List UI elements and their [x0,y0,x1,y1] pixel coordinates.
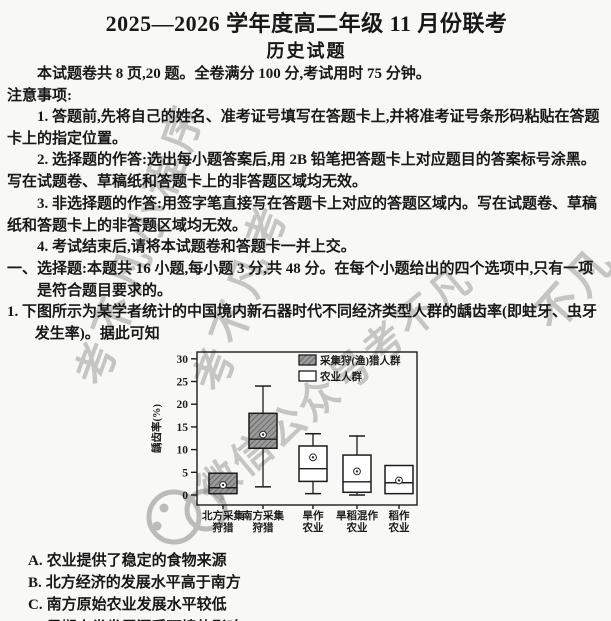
answer-options: A.农业提供了稳定的食物来源 B.北方经济的发展水平高于南方 C.南方原始农业发… [7,550,606,621]
option-c: C.南方原始农业发展水平较低 [28,594,606,616]
question-number: 1. [7,304,22,320]
svg-text:5: 5 [182,467,188,479]
svg-text:北方采集: 北方采集 [202,509,244,522]
option-c-text: 南方原始农业发展水平较低 [47,597,227,613]
option-a-label: A. [28,553,43,569]
notice-item: 4. 考试结束后,请将本试题卷和答题卡一并上交。 [7,237,606,259]
svg-text:狩猎: 狩猎 [212,521,234,534]
exam-paper-page: 考不凡小程序考不凡考微信公众号考不凡不凡 2025—2026 学年度高二年级 1… [0,0,611,621]
question-1: 1. 下图所示为某学者统计的中国境内新石器时代不同经济类型人群的龋齿率(即蛀牙、… [7,302,606,345]
svg-text:旱稻混作: 旱稻混作 [336,509,378,522]
option-b: B.北方经济的发展水平高于南方 [28,572,606,594]
svg-text:农业: 农业 [302,521,324,534]
svg-text:旱作: 旱作 [303,509,324,522]
document-content: 2025—2026 学年度高二年级 11 月份联考 历史试题 本试题卷共 8 页… [0,10,611,621]
page-subtitle: 历史试题 [7,39,606,63]
svg-text:0: 0 [182,490,188,502]
option-d: D.早期人类发展深受环境的影响 [28,617,606,621]
svg-text:20: 20 [177,399,189,411]
notice-item: 1. 答题前,先将自己的姓名、准考证号填写在答题卡上,并将准考证号条形码粘贴在答… [7,107,606,150]
notice-item: 2. 选择题的作答:选出每小题答案后,用 2B 铅笔把答题卡上对应题目的答案标号… [7,150,606,193]
question-text: 下图所示为某学者统计的中国境内新石器时代不同经济类型人群的龋齿率(即蛀牙、虫牙发… [22,304,597,342]
svg-text:农业人群: 农业人群 [319,370,362,383]
svg-text:农业: 农业 [346,521,368,534]
notice-heading: 注意事项: [7,85,606,107]
notice-item: 3. 非选择题的作答:用签字笔直接写在答题卡上对应的答题区域内。写在试题卷、草稿… [7,194,606,237]
svg-text:采集狩(渔)猎人群: 采集狩(渔)猎人群 [319,354,401,367]
svg-text:龋齿率(%): 龋齿率(%) [150,403,163,452]
svg-text:25: 25 [177,376,189,388]
option-a-text: 农业提供了稳定的食物来源 [47,553,227,569]
boxplot-svg: 051015202530龋齿率(%)北方采集狩猎南方采集狩猎旱作农业旱稻混作农业… [145,346,491,543]
svg-text:30: 30 [177,354,189,366]
option-b-label: B. [28,575,42,591]
svg-text:南方采集: 南方采集 [242,509,284,522]
option-a: A.农业提供了稳定的食物来源 [28,550,606,572]
page-title: 2025—2026 学年度高二年级 11 月份联考 [7,10,606,38]
exam-meta-line: 本试题卷共 8 页,20 题。全卷满分 100 分,考试用时 75 分钟。 [7,63,606,85]
boxplot-chart: 051015202530龋齿率(%)北方采集狩猎南方采集狩猎旱作农业旱稻混作农业… [145,346,491,543]
svg-text:10: 10 [177,444,189,456]
svg-text:狩猎: 狩猎 [252,521,274,534]
svg-text:15: 15 [177,422,189,434]
option-c-label: C. [28,597,43,613]
section-heading: 一、选择题:本题共 16 小题,每小题 3 分,共 48 分。在每个小题给出的四… [7,259,606,302]
svg-text:稻作: 稻作 [389,509,410,522]
svg-text:农业: 农业 [388,521,410,534]
option-b-text: 北方经济的发展水平高于南方 [46,575,241,591]
